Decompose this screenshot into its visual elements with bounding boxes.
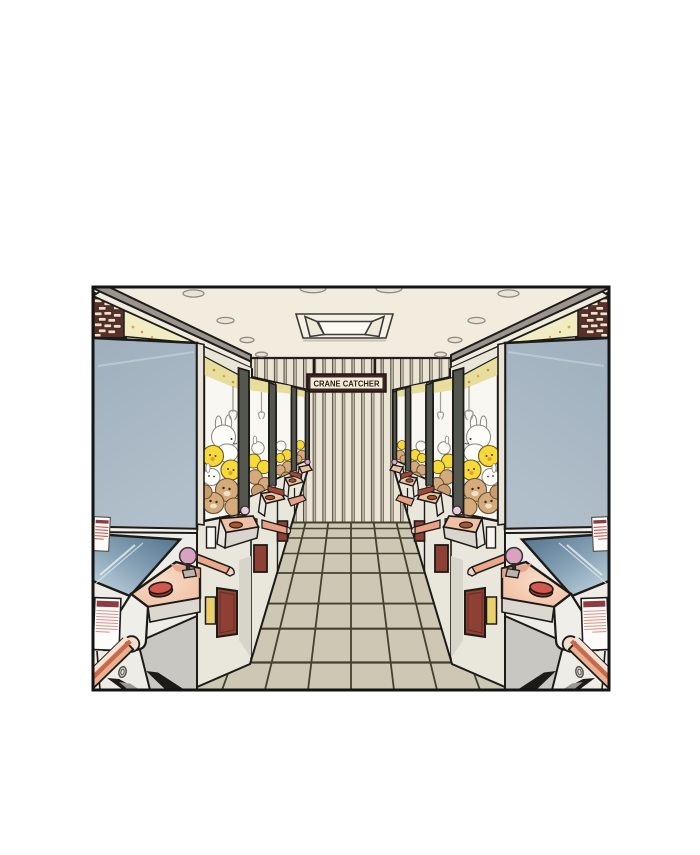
svg-text:CRANE CATCHER: CRANE CATCHER: [314, 379, 380, 389]
